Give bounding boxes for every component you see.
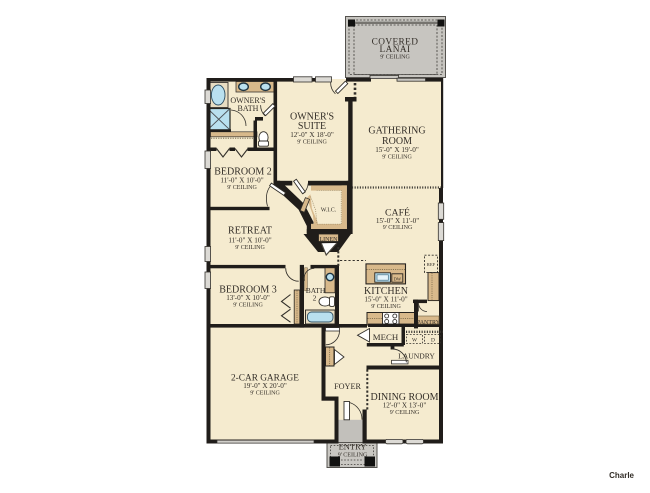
- svg-text:W.I.C.: W.I.C.: [321, 208, 337, 214]
- svg-text:15'-0" X 11'-0": 15'-0" X 11'-0": [364, 296, 407, 304]
- svg-text:9' CEILING: 9' CEILING: [227, 185, 257, 191]
- svg-text:FOYER: FOYER: [334, 382, 361, 391]
- svg-text:GATHERING: GATHERING: [368, 126, 425, 137]
- svg-text:9' CEILING: 9' CEILING: [390, 410, 420, 416]
- svg-text:MECH: MECH: [373, 332, 399, 342]
- svg-text:9' CEILING: 9' CEILING: [371, 304, 401, 310]
- svg-text:LANAI: LANAI: [380, 45, 411, 55]
- svg-text:DW: DW: [393, 276, 401, 281]
- svg-text:LAUNDRY: LAUNDRY: [398, 352, 435, 361]
- svg-text:Charle: Charle: [609, 471, 634, 480]
- svg-text:15'-0" X 19'-0": 15'-0" X 19'-0": [375, 146, 419, 154]
- svg-text:D: D: [431, 338, 435, 344]
- svg-text:12'-0" X 13'-0": 12'-0" X 13'-0": [383, 402, 427, 410]
- svg-text:11'-0" X 10'-0": 11'-0" X 10'-0": [228, 237, 271, 245]
- svg-text:19'-0" X 20'-0": 19'-0" X 20'-0": [243, 382, 287, 390]
- svg-text:REF: REF: [427, 262, 436, 267]
- svg-text:9' CEILING: 9' CEILING: [233, 303, 263, 309]
- svg-text:RETREAT: RETREAT: [228, 226, 272, 237]
- svg-text:ENTRY: ENTRY: [339, 442, 367, 452]
- svg-text:9' CEILING: 9' CEILING: [338, 453, 368, 459]
- svg-text:9' CEILING: 9' CEILING: [250, 391, 280, 397]
- svg-text:12'-0" X 18'-0": 12'-0" X 18'-0": [290, 131, 334, 139]
- svg-text:9' CEILING: 9' CEILING: [382, 155, 412, 161]
- svg-text:PANTRY: PANTRY: [417, 320, 441, 326]
- svg-text:9' CEILING: 9' CEILING: [297, 140, 327, 146]
- svg-text:15'-0" X 11'-0": 15'-0" X 11'-0": [376, 217, 419, 225]
- svg-text:2: 2: [313, 294, 317, 303]
- svg-text:BATH: BATH: [238, 104, 259, 113]
- svg-text:9' CEILING: 9' CEILING: [380, 55, 410, 61]
- svg-text:LINEN: LINEN: [320, 237, 339, 243]
- svg-text:9' CEILING: 9' CEILING: [235, 245, 265, 251]
- svg-text:11'-0" X 10'-0": 11'-0" X 10'-0": [220, 177, 263, 185]
- svg-text:13'-0" X 10'-0": 13'-0" X 10'-0": [226, 294, 270, 302]
- svg-text:9' CEILING: 9' CEILING: [383, 225, 413, 231]
